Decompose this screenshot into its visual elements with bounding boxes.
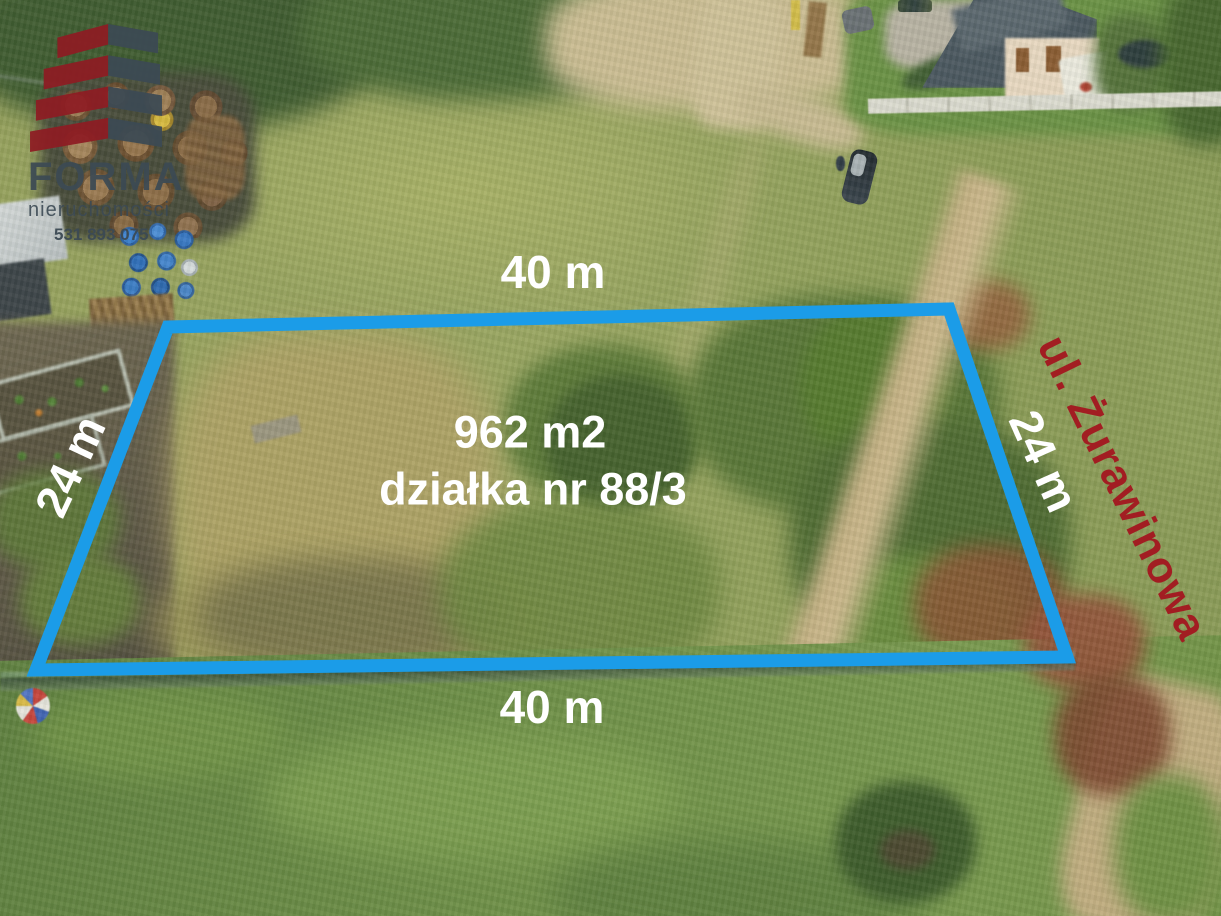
brand-tagline: nieruchomości (28, 199, 208, 222)
dimension-label-bottom: 40 m (500, 684, 605, 730)
brand-name: FORMA (28, 155, 208, 200)
dimension-label-top: 40 m (501, 249, 606, 295)
phone-number: 531 893 075 (54, 225, 208, 245)
building-blocks-icon (30, 24, 162, 153)
aerial-plot-photo: 40 m 40 m 24 m 24 m 962 m2 działka nr 88… (0, 0, 1221, 916)
plot-area-label: 962 m2 (454, 410, 607, 455)
agency-watermark: FORMA nieruchomości 531 893 075 (28, 24, 208, 245)
parcel-number-label: działka nr 88/3 (379, 467, 687, 512)
